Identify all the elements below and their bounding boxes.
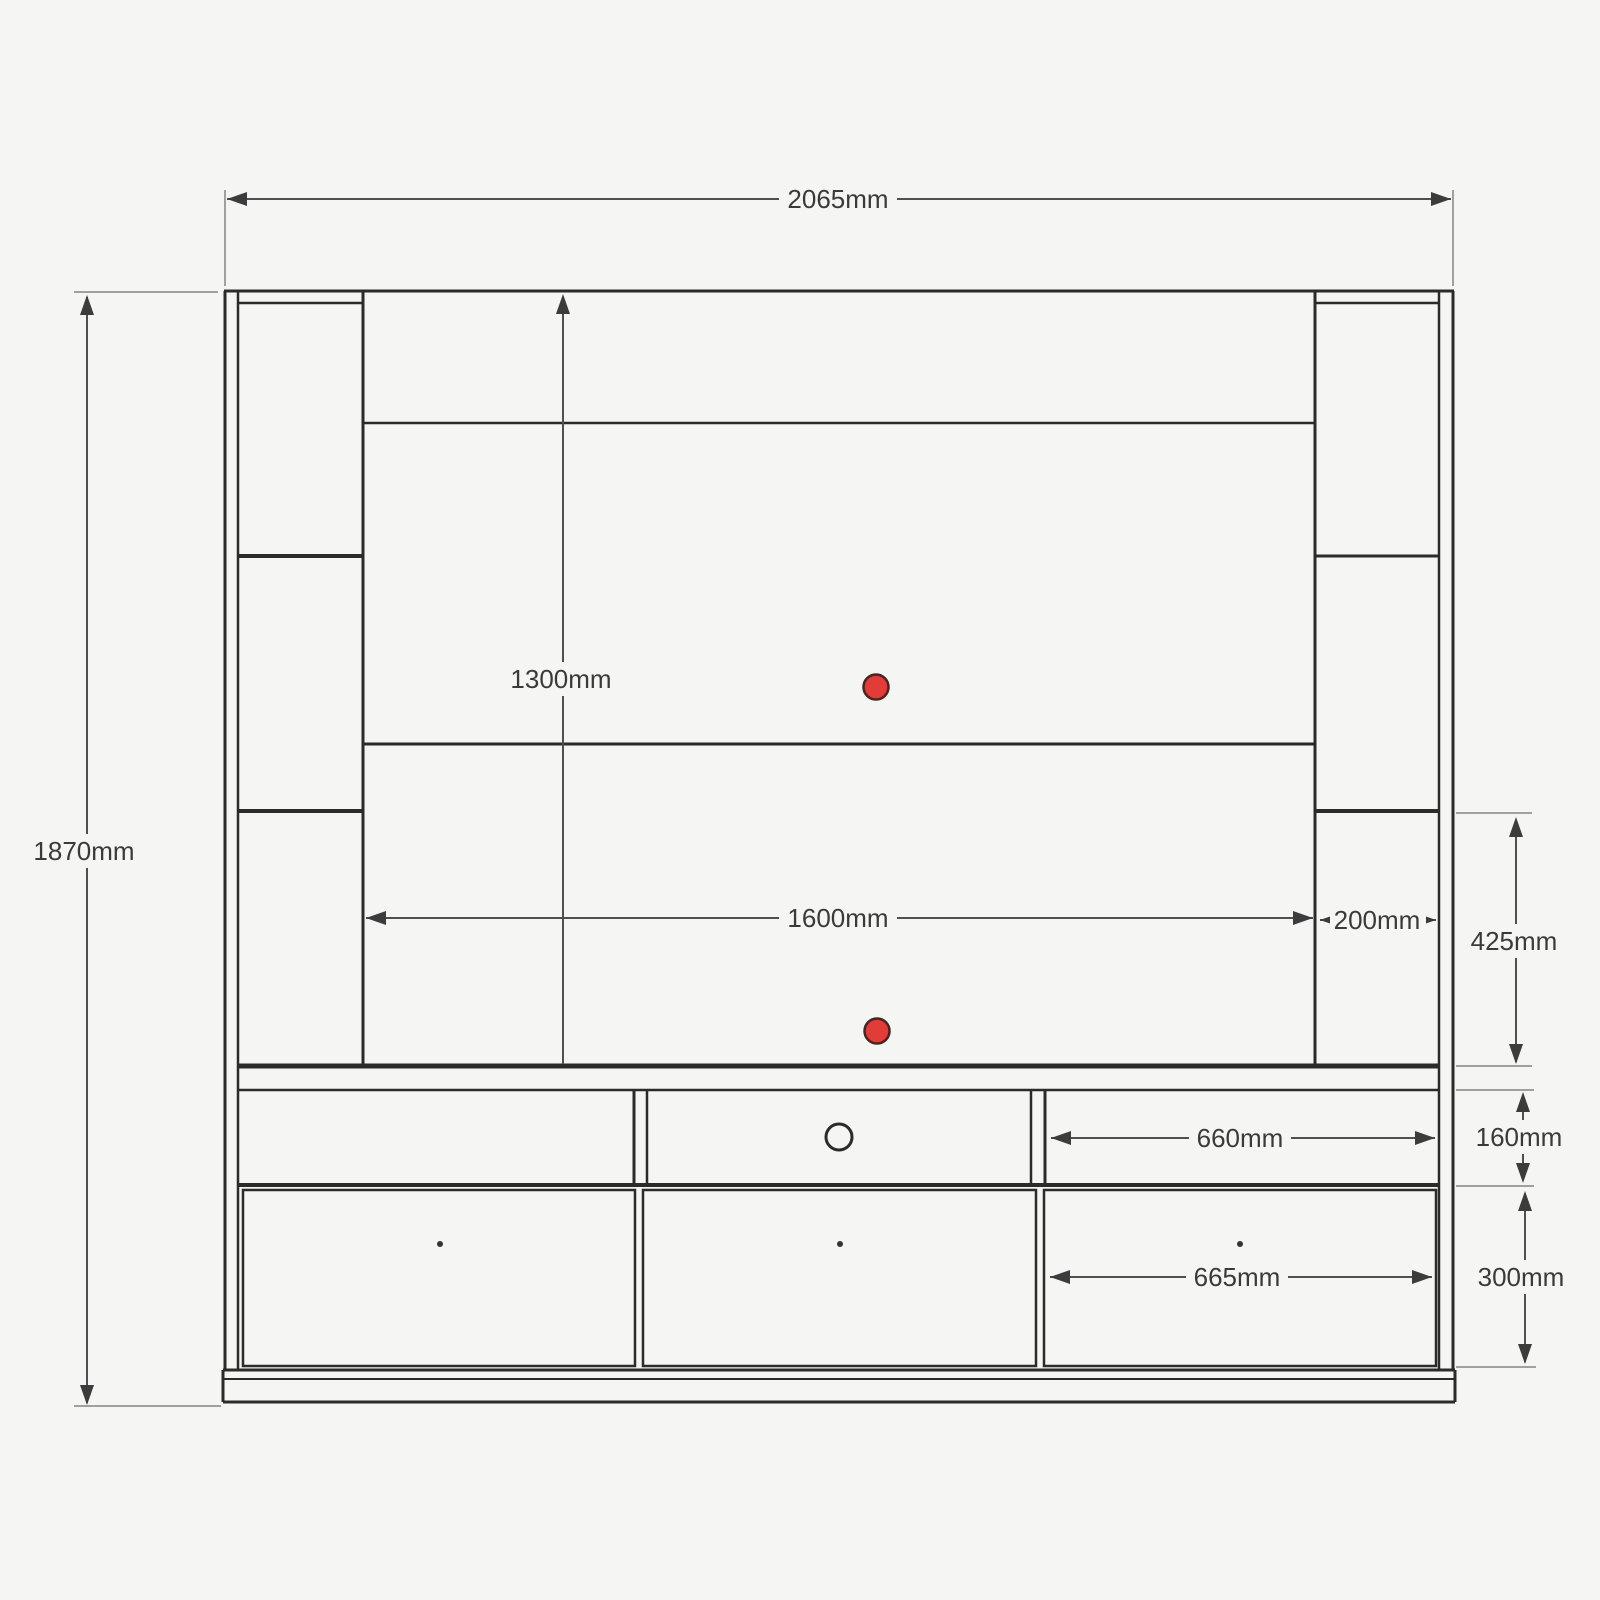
dim-side-tower-width: 200mm [1320,903,1436,937]
drawer-handle-dot-middle [837,1241,843,1247]
dim-drawer-width-arrow-left [1050,1270,1070,1284]
dim-overall-width-arrow-right [1431,192,1451,206]
drawer-handle-dot-left [437,1241,443,1247]
dim-open-shelf-height-arrow-top [1516,1092,1530,1112]
cable-hole-dot-upper [864,675,889,700]
cable-hole-dot-lower [865,1019,890,1044]
dim-overall-height-label: 1870mm [33,836,134,866]
dim-drawer-height-arrow-bottom [1518,1344,1532,1364]
knob-circle [826,1124,852,1150]
dim-back-panel-height: 1300mm [502,294,620,1064]
drawer-left [243,1190,635,1366]
dim-drawer-width: 665mm [1050,1260,1432,1294]
dim-overall-width-label: 2065mm [787,184,888,214]
carcass-outline [224,291,1454,1371]
right-tower [1315,291,1439,1066]
drawing-canvas: 2065mm 1870mm 1300mm 1600mm [0,0,1600,1600]
drawer-handle-dot-right [1237,1241,1243,1247]
dim-open-shelf-width: 660mm [1051,1121,1435,1155]
dim-drawer-height: 300mm [1456,1191,1572,1367]
dim-tower-lower-height-arrow-top [1509,817,1523,837]
dim-back-panel-height-label: 1300mm [510,664,611,694]
dim-open-shelf-height-arrow-bottom [1516,1163,1530,1183]
dim-tower-lower-height-label: 425mm [1471,926,1558,956]
dim-drawer-width-arrow-right [1412,1270,1432,1284]
furniture-dimension-drawing: 2065mm 1870mm 1300mm 1600mm [0,0,1600,1600]
dim-open-shelf-width-arrow-right [1415,1131,1435,1145]
plinth-base [223,1370,1455,1402]
dim-tower-lower-height-arrow-bottom [1509,1044,1523,1064]
left-tower [238,291,363,1066]
dim-open-shelf-width-label: 660mm [1197,1123,1284,1153]
dim-open-shelf-height: 160mm [1456,1090,1570,1186]
dim-back-panel-height-arrow-top [556,294,570,314]
dim-overall-width-arrow-left [227,192,247,206]
dim-overall-height: 1870mm [25,292,221,1406]
dim-side-tower-width-label: 200mm [1334,905,1421,935]
dim-drawer-height-label: 300mm [1478,1262,1565,1292]
dim-open-shelf-width-arrow-left [1051,1131,1071,1145]
dim-overall-height-arrow-top [80,295,94,315]
dim-center-opening-width-arrow-right [1293,911,1313,925]
dim-center-opening-width-label: 1600mm [787,903,888,933]
dimension-annotations: 2065mm 1870mm 1300mm 1600mm [25,182,1572,1406]
furniture-unit [223,291,1455,1402]
tv-back-panel [363,423,1315,1044]
dim-tower-lower-height: 425mm [1456,813,1565,1066]
dim-overall-height-arrow-bottom [80,1385,94,1405]
dim-center-opening-width: 1600mm [366,901,1313,935]
dim-overall-width: 2065mm [225,182,1453,286]
dim-center-opening-width-arrow-left [366,911,386,925]
dim-drawer-width-label: 665mm [1194,1262,1281,1292]
dim-open-shelf-height-label: 160mm [1476,1122,1563,1152]
dim-drawer-height-arrow-top [1518,1191,1532,1211]
drawer-middle [643,1190,1036,1366]
